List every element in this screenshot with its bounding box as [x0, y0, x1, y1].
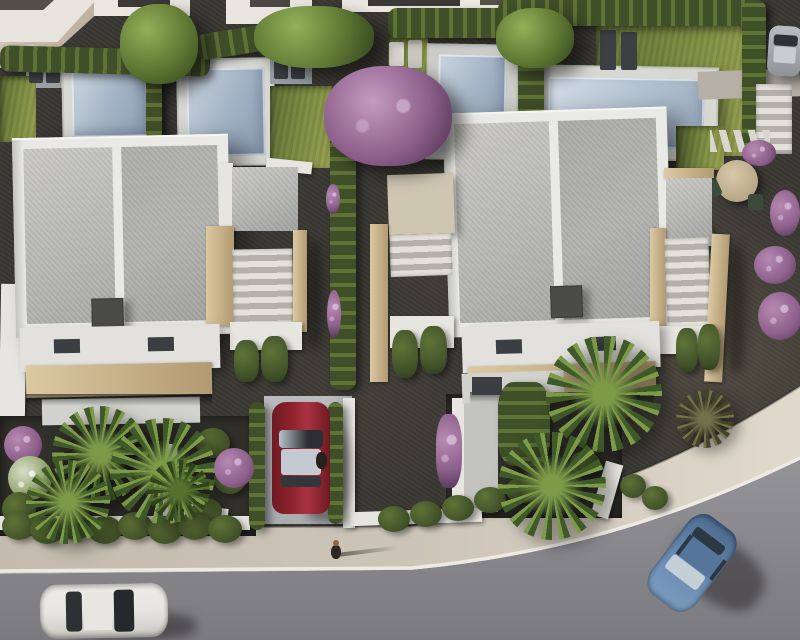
roof-vent [496, 339, 522, 354]
villa-right-exterior-stairs [664, 237, 711, 332]
person-by-car [316, 452, 327, 469]
villa-right-porch-trim [664, 168, 714, 178]
street-bush [378, 506, 410, 532]
hedge-row [388, 8, 512, 38]
green-shrub [392, 330, 418, 378]
roof-vent [54, 339, 80, 354]
villa-right-entry-canopy [387, 173, 455, 235]
green-tree [120, 4, 198, 84]
purple-ball-shrub [214, 448, 254, 488]
neighbor-roof-edge [250, 0, 290, 7]
villa-left [12, 134, 232, 338]
sun-lounger [408, 40, 422, 68]
green-tree [496, 8, 574, 68]
car-windshield [773, 34, 798, 47]
purple-shrub [754, 246, 796, 284]
villa-left-stair-wall [293, 230, 307, 332]
car-rear-window [281, 476, 321, 487]
palm-tree [498, 432, 606, 540]
neighbor-roof-edge [368, 0, 460, 6]
green-shrub [261, 336, 288, 382]
green-shrub [698, 324, 720, 370]
cast-shadow [726, 244, 746, 374]
villa-right-stair-wall [370, 224, 388, 382]
pedestrian-head [333, 540, 339, 546]
villa-right-chimney [550, 285, 583, 318]
car-roof [773, 46, 796, 63]
sun-lounger [389, 42, 404, 66]
green-shrub [420, 326, 447, 374]
driveway-hedge [328, 402, 343, 524]
white-car [40, 583, 169, 639]
purple-flowering-tree [324, 66, 452, 166]
sun-lounger [600, 30, 616, 70]
dry-shrub [676, 390, 734, 448]
purple-shrub [327, 290, 341, 338]
car-windshield [114, 589, 135, 631]
purple-shrub [326, 184, 340, 214]
pedestrian [331, 545, 341, 559]
green-tree [254, 6, 374, 68]
gray-car [766, 25, 800, 77]
villa-right [443, 107, 674, 338]
car-roof [84, 592, 113, 630]
villa-left-stone-facade [26, 362, 213, 398]
villa-right-entry-stairs [389, 233, 452, 277]
garden-chair [748, 194, 763, 210]
car-roof [281, 449, 321, 475]
lawn-strip [0, 76, 36, 142]
green-shrub [676, 328, 698, 372]
villa-left-stair-wall [206, 226, 234, 326]
purple-flower-bed [436, 414, 462, 488]
car-windshield [279, 430, 323, 448]
green-shrub [234, 340, 259, 382]
car-rear-window [66, 591, 83, 631]
purple-shrub [770, 190, 800, 236]
villa-right-doorway [472, 377, 502, 395]
villa-left-porch-parapet [219, 163, 233, 231]
aerial-villa-render [0, 0, 800, 640]
purple-shrub [758, 292, 800, 340]
sun-lounger [621, 32, 637, 70]
villa-left-porch-roof [232, 167, 298, 231]
palm-tree [26, 460, 110, 544]
street-bush [208, 515, 242, 543]
pool-a-water [71, 70, 148, 137]
villa-right-porch-roof [666, 178, 712, 246]
green-shrub [642, 486, 668, 510]
roof-vent [148, 337, 174, 352]
facade-shadow [26, 394, 212, 406]
villa-left-exterior-stairs [232, 248, 293, 325]
lawn-center [270, 86, 332, 168]
street-bush [442, 495, 474, 521]
fern-shrub [148, 460, 210, 522]
street-bush [410, 501, 442, 527]
cast-shadow [305, 240, 323, 350]
